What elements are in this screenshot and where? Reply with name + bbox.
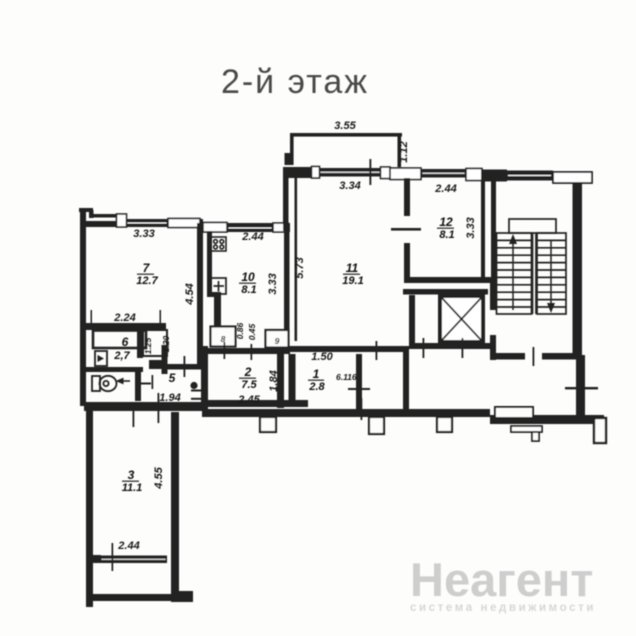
svg-text:6.116: 6.116 [336,372,357,382]
svg-text:2.8: 2.8 [308,381,325,393]
svg-text:2.44: 2.44 [117,540,139,552]
svg-text:2.44: 2.44 [434,183,456,195]
svg-text:11.1: 11.1 [122,482,143,494]
svg-text:3.33: 3.33 [465,217,477,238]
svg-text:0.86: 0.86 [235,322,245,339]
svg-text:1.12: 1.12 [398,141,410,162]
svg-text:4.55: 4.55 [153,466,165,489]
svg-text:10: 10 [241,270,255,284]
svg-text:5.73: 5.73 [294,257,306,278]
svg-text:4.54: 4.54 [184,283,196,305]
svg-text:8.1: 8.1 [439,229,454,241]
svg-text:12.7: 12.7 [136,275,158,287]
svg-text:1.84: 1.84 [268,370,280,391]
svg-text:3.33: 3.33 [267,273,279,294]
svg-text:1: 1 [313,367,320,381]
svg-text:2.24: 2.24 [113,312,135,324]
svg-text:3: 3 [128,468,135,482]
svg-text:8: 8 [221,334,226,344]
svg-text:2,7: 2,7 [113,350,130,362]
svg-text:3.33: 3.33 [133,228,154,240]
svg-text:2: 2 [244,365,252,379]
svg-text:0.45: 0.45 [247,323,257,340]
svg-text:5: 5 [169,371,176,385]
svg-text:12: 12 [439,215,453,229]
svg-text:11: 11 [346,261,359,275]
svg-text:2.44: 2.44 [241,231,263,243]
svg-text:1.20: 1.20 [161,335,171,352]
svg-text:2.45: 2.45 [237,394,260,406]
svg-text:Неагент: Неагент [410,553,593,606]
svg-text:6: 6 [122,335,129,349]
svg-text:1.25: 1.25 [143,337,153,354]
svg-text:7.5: 7.5 [241,379,257,391]
svg-text:система недвижимости: система недвижимости [410,602,596,614]
svg-text:3.55: 3.55 [334,120,356,132]
svg-text:9: 9 [275,336,280,346]
svg-text:1.94: 1.94 [159,392,180,404]
svg-text:2-й этаж: 2-й этаж [221,63,369,101]
svg-text:19.1: 19.1 [342,275,363,287]
svg-text:8.1: 8.1 [241,284,256,296]
svg-text:1.50: 1.50 [311,351,333,363]
svg-text:3.34: 3.34 [339,180,360,192]
